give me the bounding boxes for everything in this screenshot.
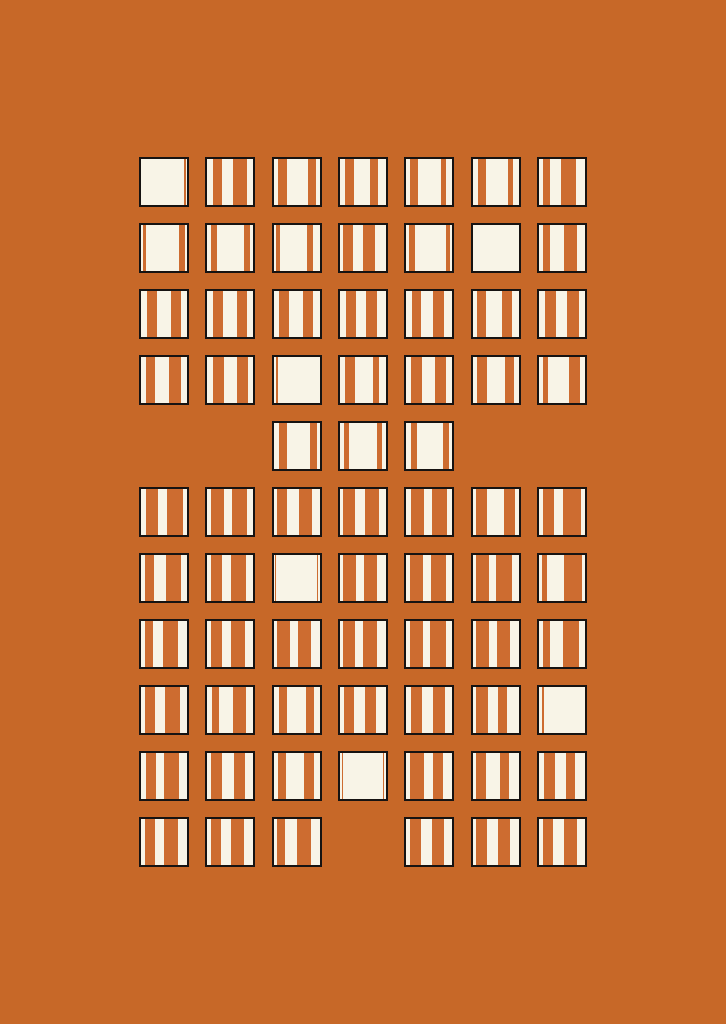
squares-grid [0,0,726,1024]
vertical-stripe [543,159,551,205]
vertical-stripe [443,423,449,469]
pattern-square [205,487,255,537]
pattern-square [537,289,587,339]
pattern-square [471,553,521,603]
vertical-stripe [343,555,356,601]
pattern-square [537,223,587,273]
pattern-square [272,553,322,603]
pattern-square [272,289,322,339]
pattern-square [338,685,388,735]
pattern-square [272,421,322,471]
pattern-square [338,289,388,339]
vertical-stripe [276,225,280,271]
vertical-stripe [410,621,423,667]
vertical-stripe [363,225,375,271]
pattern-square [404,751,454,801]
vertical-stripe [478,159,486,205]
vertical-stripe [476,687,488,733]
vertical-stripe [213,159,222,205]
pattern-square [537,553,587,603]
vertical-stripe [164,819,178,865]
pattern-square [139,355,189,405]
pattern-square [404,817,454,867]
vertical-stripe [412,291,421,337]
vertical-stripe [306,687,314,733]
vertical-stripe [365,489,379,535]
pattern-square [139,685,189,735]
vertical-stripe [234,753,246,799]
pattern-square [404,619,454,669]
vertical-stripe [345,159,355,205]
vertical-stripe [237,357,248,403]
vertical-stripe [145,687,155,733]
vertical-stripe [211,753,222,799]
vertical-stripe [411,357,422,403]
pattern-square [404,223,454,273]
vertical-stripe [308,159,316,205]
vertical-stripe [213,291,223,337]
vertical-stripe [233,687,246,733]
vertical-stripe [476,555,489,601]
vertical-stripe [212,687,219,733]
vertical-stripe [146,357,155,403]
vertical-stripe [303,291,313,337]
vertical-stripe [277,621,290,667]
pattern-square [205,223,255,273]
vertical-stripe [543,489,554,535]
vertical-stripe [179,225,185,271]
vertical-stripe [231,819,244,865]
pattern-square [471,157,521,207]
vertical-stripe [279,291,290,337]
pattern-square [471,817,521,867]
pattern-square [338,751,388,801]
vertical-stripe [431,555,447,601]
pattern-square [139,223,189,273]
pattern-square [471,289,521,339]
vertical-stripe [275,555,276,601]
vertical-stripe [430,621,446,667]
vertical-stripe [543,225,550,271]
vertical-stripe [563,621,580,667]
pattern-square [272,355,322,405]
pattern-square [205,553,255,603]
vertical-stripe [366,291,377,337]
vertical-stripe [543,357,548,403]
vertical-stripe [498,687,507,733]
vertical-stripe [561,159,576,205]
vertical-stripe [277,489,287,535]
vertical-stripe [411,687,423,733]
pattern-square [205,817,255,867]
pattern-square [471,487,521,537]
vertical-stripe [497,621,511,667]
vertical-stripe [279,423,288,469]
vertical-stripe [146,753,156,799]
pattern-square [139,553,189,603]
vertical-stripe [508,159,513,205]
pattern-square [537,685,587,735]
vertical-stripe [433,687,445,733]
pattern-square [404,289,454,339]
vertical-stripe [542,687,544,733]
vertical-stripe [145,621,153,667]
pattern-square [272,157,322,207]
vertical-stripe [564,819,577,865]
pattern-square [205,157,255,207]
vertical-stripe [278,753,286,799]
pattern-square [471,685,521,735]
vertical-stripe [211,555,222,601]
pattern-square [139,619,189,669]
vertical-stripe [542,555,548,601]
pattern-square [338,487,388,537]
vertical-stripe [363,621,377,667]
vertical-stripe [476,753,486,799]
vertical-stripe [567,291,579,337]
pattern-square [404,421,454,471]
pattern-square [272,223,322,273]
vertical-stripe [502,291,512,337]
vertical-stripe [211,225,217,271]
pattern-square [338,619,388,669]
vertical-stripe [545,291,555,337]
vertical-stripe [231,621,245,667]
vertical-stripe [410,159,418,205]
vertical-stripe [298,621,311,667]
vertical-stripe [344,687,354,733]
vertical-stripe [167,489,184,535]
vertical-stripe [171,291,181,337]
vertical-stripe [233,159,247,205]
vertical-stripe [237,291,248,337]
vertical-stripe [409,225,415,271]
vertical-stripe [432,489,447,535]
pattern-square [537,355,587,405]
vertical-stripe [211,489,224,535]
vertical-stripe [505,357,514,403]
vertical-stripe [276,357,278,403]
pattern-square [471,355,521,405]
vertical-stripe [410,753,424,799]
pattern-square [404,685,454,735]
pattern-square [471,223,521,273]
vertical-stripe [145,555,154,601]
vertical-stripe [343,489,355,535]
pattern-square [205,355,255,405]
pattern-square [272,817,322,867]
vertical-stripe [299,489,312,535]
vertical-stripe [277,819,284,865]
vertical-stripe [441,159,446,205]
pattern-square [404,355,454,405]
pattern-square [139,487,189,537]
pattern-square [272,619,322,669]
vertical-stripe [163,621,178,667]
vertical-stripe [476,621,489,667]
vertical-stripe [345,357,355,403]
vertical-stripe [370,159,378,205]
vertical-stripe [566,753,576,799]
pattern-square [272,685,322,735]
vertical-stripe [364,555,377,601]
vertical-stripe [211,819,221,865]
vertical-stripe [231,555,246,601]
vertical-stripe [433,753,443,799]
pattern-square [205,751,255,801]
pattern-square [537,157,587,207]
pattern-square [338,553,388,603]
vertical-stripe [184,159,186,205]
vertical-stripe [232,489,247,535]
vertical-stripe [569,357,580,403]
pattern-square [338,223,388,273]
vertical-stripe [211,621,223,667]
vertical-stripe [410,819,421,865]
vertical-stripe [476,489,488,535]
vertical-stripe [500,753,510,799]
pattern-square [537,751,587,801]
vertical-stripe [446,225,449,271]
pattern-square [537,817,587,867]
vertical-stripe [165,687,180,733]
vertical-stripe [343,225,353,271]
pattern-square [338,421,388,471]
striped-squares-artwork [0,0,726,1024]
pattern-square [139,751,189,801]
vertical-stripe [278,159,287,205]
vertical-stripe [143,225,146,271]
vertical-stripe [432,819,445,865]
pattern-square [338,157,388,207]
vertical-stripe [411,489,424,535]
vertical-stripe [304,753,314,799]
pattern-square [272,487,322,537]
pattern-square [471,619,521,669]
vertical-stripe [563,489,581,535]
vertical-stripe [169,357,181,403]
vertical-stripe [307,225,313,271]
pattern-square [404,487,454,537]
pattern-square [139,157,189,207]
pattern-square [272,751,322,801]
vertical-stripe [543,819,553,865]
vertical-stripe [244,225,250,271]
vertical-stripe [410,555,424,601]
vertical-stripe [342,753,343,799]
vertical-stripe [310,423,317,469]
pattern-square [537,487,587,537]
vertical-stripe [365,687,376,733]
vertical-stripe [377,423,382,469]
vertical-stripe [564,225,577,271]
vertical-stripe [477,357,487,403]
vertical-stripe [317,555,318,601]
pattern-square [537,619,587,669]
vertical-stripe [543,621,550,667]
pattern-square [471,751,521,801]
vertical-stripe [279,687,288,733]
vertical-stripe [435,357,446,403]
pattern-square [139,817,189,867]
vertical-stripe [476,819,487,865]
pattern-square [205,289,255,339]
vertical-stripe [147,291,157,337]
vertical-stripe [373,357,379,403]
vertical-stripe [166,555,182,601]
vertical-stripe [346,291,356,337]
vertical-stripe [564,555,581,601]
vertical-stripe [297,819,312,865]
pattern-square [338,355,388,405]
vertical-stripe [145,819,155,865]
pattern-square [139,289,189,339]
pattern-square [404,553,454,603]
vertical-stripe [433,291,444,337]
vertical-stripe [383,753,384,799]
pattern-square [205,619,255,669]
pattern-square [404,157,454,207]
vertical-stripe [344,423,350,469]
vertical-stripe [477,291,486,337]
vertical-stripe [343,621,355,667]
vertical-stripe [496,555,513,601]
vertical-stripe [544,753,556,799]
pattern-square [205,685,255,735]
vertical-stripe [498,819,510,865]
vertical-stripe [504,489,516,535]
vertical-stripe [146,489,159,535]
vertical-stripe [213,357,224,403]
vertical-stripe [411,423,417,469]
vertical-stripe [164,753,179,799]
